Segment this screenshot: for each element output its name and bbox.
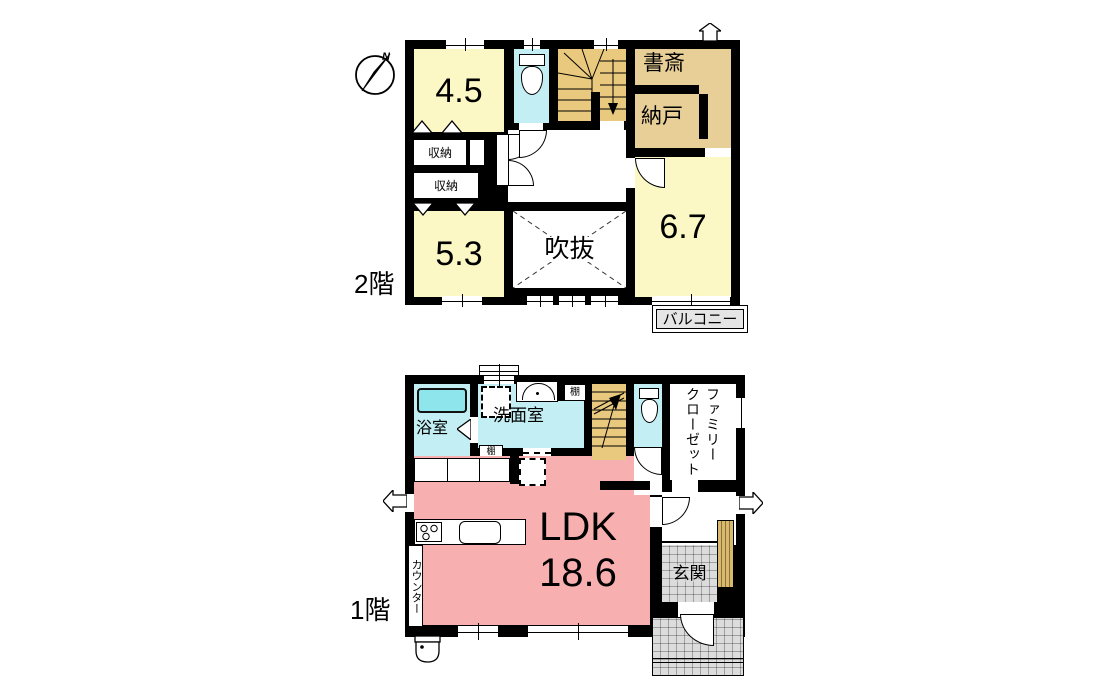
door-opening-67 (626, 158, 635, 188)
room-6.7-label: 6.7 (659, 210, 706, 244)
open-boundary-washroom (523, 448, 551, 456)
door-opening-closet (672, 480, 698, 492)
sink-icon (459, 521, 501, 544)
window-protruding (479, 365, 519, 376)
entrance-hall: 玄関 (662, 545, 717, 602)
closet-door-gap (470, 140, 484, 165)
closet-lower: 収納 (414, 173, 478, 198)
closet-lower-label: 収納 (434, 180, 458, 192)
closet-upper: 収納 (414, 140, 466, 165)
shelf-top-label: 棚 (570, 388, 580, 398)
compass-icon: N (352, 46, 404, 98)
door-opening-hall-west (497, 135, 508, 185)
stove-icon (416, 522, 442, 542)
window (528, 626, 628, 637)
counter-label: カウンター (410, 559, 421, 614)
counter-strip: カウンター (408, 545, 423, 627)
entrance-step-line (662, 541, 717, 543)
family-closet-line1: ファミリー (703, 387, 723, 477)
washroom-label: 洗面室 (493, 407, 544, 424)
compass-north-label: N (382, 51, 391, 63)
entrance-label: 玄関 (673, 565, 707, 582)
entry-arrow-right-icon (739, 492, 763, 514)
bifold-door-icon-lower (409, 203, 489, 217)
window (559, 296, 585, 305)
ldk-size-label: 18.6 (539, 553, 617, 593)
ldk-label: LDK (539, 507, 617, 547)
refrigerator-space (519, 458, 546, 486)
window (446, 40, 484, 49)
wall-stub-ldk (600, 481, 650, 490)
room-4.5-label: 4.5 (435, 74, 482, 108)
toilet-icon-2f (519, 54, 545, 66)
toilet-icon-1f (639, 388, 659, 399)
study-label: 書斎 (643, 53, 685, 74)
window (736, 398, 745, 428)
stairs-up-1f (592, 384, 626, 460)
family-closet-label: ファミリー クローゼット (683, 387, 723, 477)
balcony-label: バルコニー (663, 312, 738, 327)
closet-upper-label: 収納 (428, 147, 452, 159)
room-5.3: 5.3 (414, 211, 504, 297)
door-opening-ldk-hall (650, 497, 662, 527)
window-balcony (652, 296, 730, 305)
bathroom-label: 浴室 (416, 421, 448, 437)
void-label: 吹抜 (541, 237, 597, 262)
balcony: バルコニー (652, 305, 748, 333)
wall-storeroom-right (699, 94, 708, 139)
window (442, 296, 482, 305)
shelf-top: 棚 (564, 384, 586, 401)
bathtub-icon (417, 388, 467, 413)
floor-plan-canvas: N 4.5 書斎 納戸 収納 収納 (0, 0, 1100, 700)
door-opening-bath (470, 417, 478, 443)
family-closet-line2: クローゼット (683, 387, 703, 477)
family-closet: ファミリー クローゼット (670, 384, 736, 480)
outdoor-faucet-icon (413, 635, 443, 664)
window (458, 626, 498, 637)
room-5.3-label: 5.3 (435, 237, 482, 271)
floor1-label: 1階 (350, 597, 390, 623)
folding-door-icon (457, 419, 471, 440)
door-opening-storeroom-67 (705, 148, 731, 157)
void-area: 吹抜 (513, 211, 626, 288)
window (527, 296, 553, 305)
stair-newel-wall-2f (591, 92, 600, 121)
floor2-label: 2階 (354, 271, 394, 297)
window (591, 296, 618, 305)
window (594, 40, 618, 49)
entry-arrow-left-icon (383, 490, 407, 512)
bifold-door-icon-upper (409, 119, 467, 133)
entry-arrow-up-icon (699, 23, 721, 41)
shoe-cabinet-icon (717, 520, 734, 588)
wall-study-storeroom (635, 85, 699, 94)
ldk-label-block: LDK 18.6 (498, 502, 658, 598)
door-opening-stairs-2f (600, 121, 624, 130)
wall-stub-kitchen (510, 456, 519, 484)
washbasin-icon (516, 381, 558, 402)
window (524, 40, 540, 49)
storeroom-label: 納戸 (641, 106, 683, 127)
kitchen-cabinets (414, 458, 510, 482)
door-opening-toilet-2f (519, 123, 543, 130)
shelf-bottom-label: 棚 (486, 447, 495, 456)
